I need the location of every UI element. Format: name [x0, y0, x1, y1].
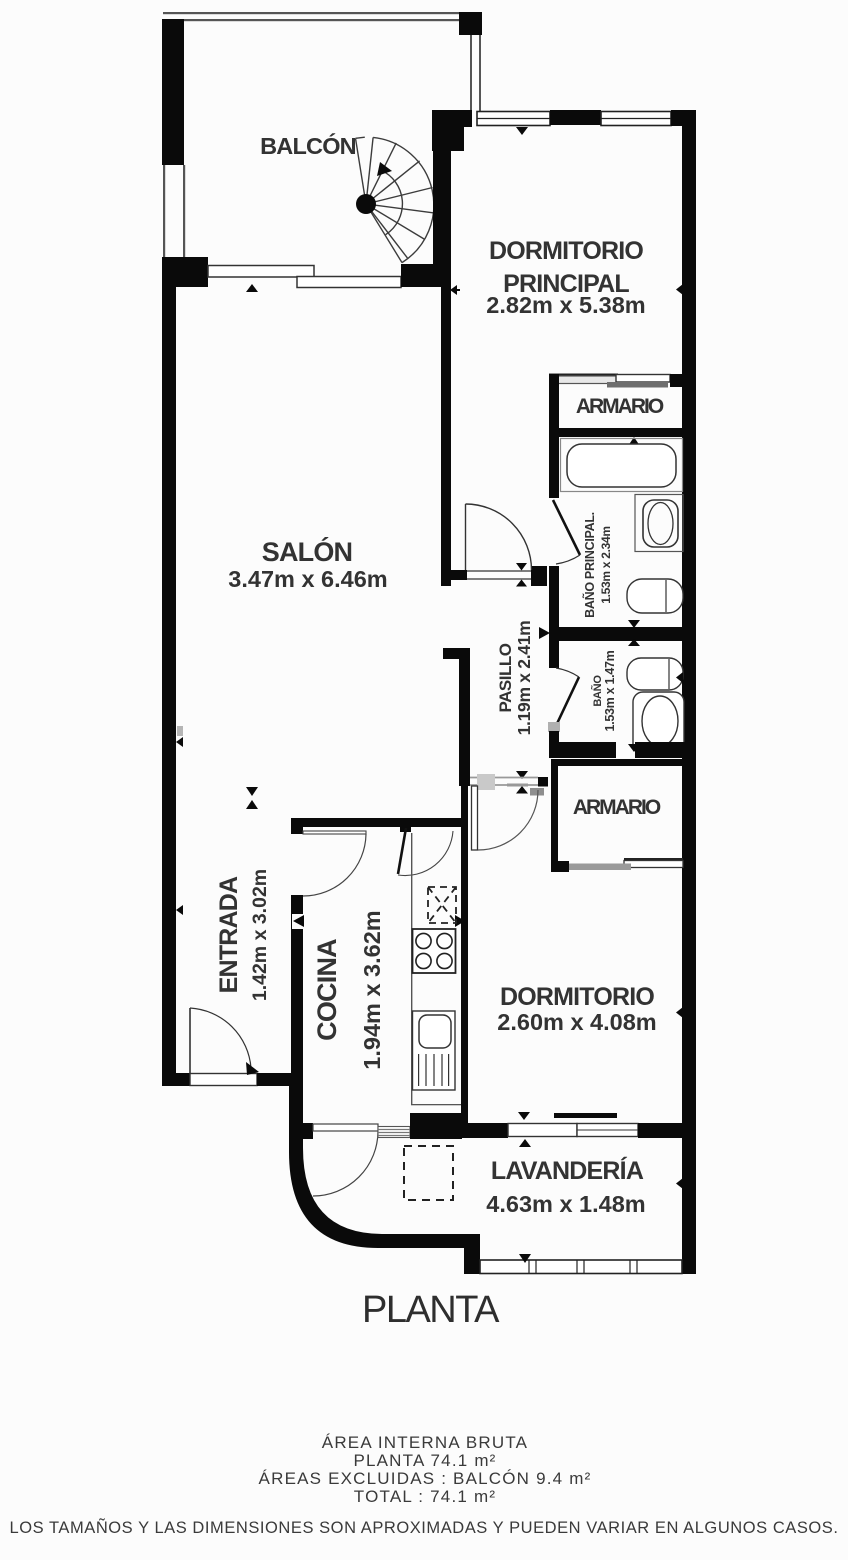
svg-text:DORMITORIO: DORMITORIO: [500, 983, 654, 1011]
svg-text:2.82m x 5.38m: 2.82m x 5.38m: [486, 292, 645, 318]
svg-text:LOS TAMAÑOS Y LAS DIMENSIONES: LOS TAMAÑOS Y LAS DIMENSIONES SON APROXI…: [10, 1517, 839, 1537]
svg-text:ÁREA INTERNA BRUTA: ÁREA INTERNA BRUTA: [322, 1433, 528, 1452]
svg-text:1.94m x 3.62m: 1.94m x 3.62m: [359, 910, 385, 1069]
svg-text:PLANTA 74.1 m²: PLANTA 74.1 m²: [353, 1451, 496, 1470]
svg-text:1.19m x 2.41m: 1.19m x 2.41m: [514, 621, 534, 736]
svg-text:BALCÓN: BALCÓN: [260, 132, 356, 159]
svg-text:SALÓN: SALÓN: [262, 536, 353, 567]
svg-text:ENTRADA: ENTRADA: [215, 876, 243, 993]
svg-text:BAÑO PRINCIPAL.: BAÑO PRINCIPAL.: [582, 512, 597, 618]
svg-text:4.63m x 1.48m: 4.63m x 1.48m: [486, 1191, 645, 1217]
svg-text:TOTAL : 74.1 m²: TOTAL : 74.1 m²: [354, 1487, 496, 1506]
svg-text:3.47m x 6.46m: 3.47m x 6.46m: [228, 566, 387, 592]
svg-text:1.53m x 1.47m: 1.53m x 1.47m: [603, 650, 617, 731]
svg-text:PASILLO: PASILLO: [496, 643, 515, 712]
svg-text:ARMARIO: ARMARIO: [573, 796, 661, 819]
svg-text:1.53m x 2.34m: 1.53m x 2.34m: [599, 526, 613, 604]
svg-text:LAVANDERÍA: LAVANDERÍA: [491, 1156, 644, 1185]
svg-text:2.60m x 4.08m: 2.60m x 4.08m: [497, 1009, 656, 1035]
svg-text:DORMITORIO: DORMITORIO: [489, 237, 643, 265]
svg-text:ÁREAS EXCLUIDAS : BALCÓN 9.4: ÁREAS EXCLUIDAS : BALCÓN 9.4 m²: [259, 1469, 592, 1488]
svg-text:ARMARIO: ARMARIO: [576, 395, 664, 418]
svg-text:PLANTA: PLANTA: [362, 1289, 500, 1331]
svg-text:1.42m x 3.02m: 1.42m x 3.02m: [249, 869, 271, 1001]
svg-text:COCINA: COCINA: [312, 939, 342, 1041]
